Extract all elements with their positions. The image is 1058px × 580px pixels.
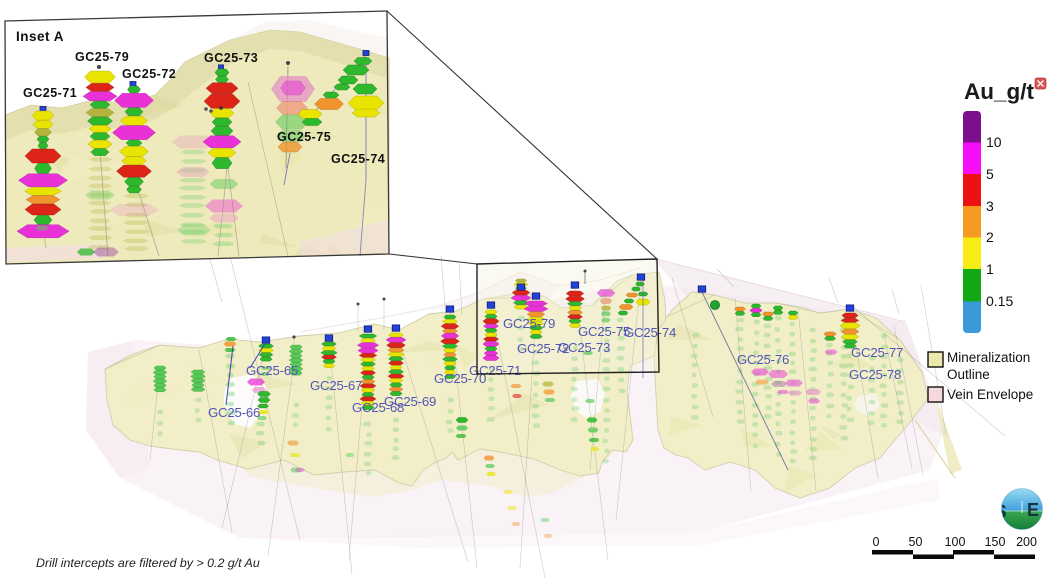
- svg-text:GC25-74: GC25-74: [624, 325, 676, 340]
- svg-text:GC25-71: GC25-71: [23, 86, 77, 100]
- svg-text:GC25-77: GC25-77: [851, 345, 903, 360]
- svg-text:Mineralization: Mineralization: [947, 350, 1030, 365]
- svg-text:3: 3: [986, 198, 994, 214]
- svg-text:5: 5: [986, 166, 994, 182]
- svg-text:200: 200: [1016, 535, 1037, 549]
- svg-text:10: 10: [986, 134, 1002, 150]
- svg-text:1: 1: [986, 261, 994, 277]
- svg-text:GC25-79: GC25-79: [503, 316, 555, 331]
- svg-text:GC25-72: GC25-72: [122, 67, 176, 81]
- svg-text:2: 2: [986, 229, 994, 245]
- svg-text:GC25-76: GC25-76: [737, 352, 789, 367]
- svg-text:Au_g/t: Au_g/t: [964, 79, 1035, 104]
- svg-text:E: E: [1027, 500, 1039, 520]
- svg-text:0: 0: [873, 535, 880, 549]
- svg-text:50: 50: [909, 535, 923, 549]
- svg-text:GC25-75: GC25-75: [578, 324, 630, 339]
- svg-text:GC25-78: GC25-78: [849, 367, 901, 382]
- svg-text:GC25-69: GC25-69: [384, 394, 436, 409]
- svg-text:150: 150: [985, 535, 1006, 549]
- svg-text:GC25-74: GC25-74: [331, 152, 385, 166]
- svg-text:GC25-79: GC25-79: [75, 50, 129, 64]
- svg-text:GC25-73: GC25-73: [558, 340, 610, 355]
- svg-text:GC25-66: GC25-66: [208, 405, 260, 420]
- svg-text:0.15: 0.15: [986, 293, 1013, 309]
- svg-text:GC25-67: GC25-67: [310, 378, 362, 393]
- svg-text:GC25-65: GC25-65: [246, 363, 298, 378]
- svg-text:Inset A: Inset A: [16, 29, 64, 44]
- svg-text:GC25-75: GC25-75: [277, 130, 331, 144]
- svg-text:100: 100: [945, 535, 966, 549]
- svg-text:GC25-73: GC25-73: [204, 51, 258, 65]
- svg-text:Outline: Outline: [947, 367, 990, 382]
- svg-text:Drill intercepts are filtered: Drill intercepts are filtered by > 0.2 g…: [36, 556, 260, 570]
- svg-text:Vein Envelope: Vein Envelope: [947, 387, 1033, 402]
